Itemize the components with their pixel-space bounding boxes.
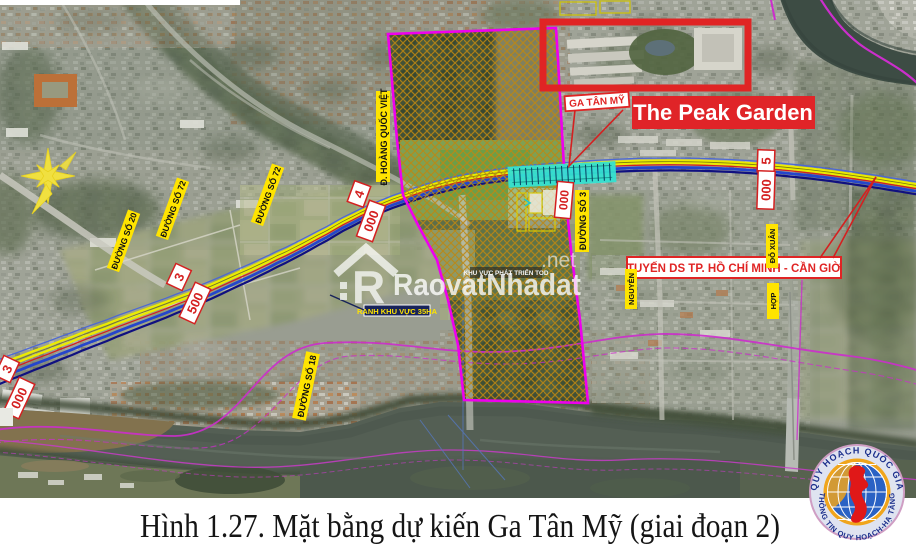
svg-text:Hình 1.27. Mặt bằng dự kiến Ga: Hình 1.27. Mặt bằng dự kiến Ga Tân Mỹ (g… <box>140 508 780 545</box>
svg-text:000: 000 <box>758 179 774 201</box>
svg-text:RaovatNhadat: RaovatNhadat <box>393 267 581 302</box>
svg-text:5: 5 <box>759 157 774 165</box>
svg-text:ĐƯỜNG SỐ 3: ĐƯỜNG SỐ 3 <box>577 192 588 250</box>
svg-text:Đ. HOÀNG QUỐC VIỆT: Đ. HOÀNG QUỐC VIỆT <box>378 88 389 186</box>
svg-text:000: 000 <box>556 189 572 210</box>
svg-text:The Peak Garden: The Peak Garden <box>633 100 813 125</box>
svg-text:.net: .net <box>541 249 576 272</box>
svg-text:HỢP: HỢP <box>769 293 778 310</box>
svg-text:R: R <box>352 261 385 313</box>
svg-text:ĐỖ XUÂN: ĐỖ XUÂN <box>768 229 777 264</box>
svg-text:NGUYỄN: NGUYỄN <box>627 273 636 305</box>
svg-text:TUYẾN DS TP. HỒ CHÍ MINH - CẦN: TUYẾN DS TP. HỒ CHÍ MINH - CẦN GIỜ <box>627 262 841 275</box>
